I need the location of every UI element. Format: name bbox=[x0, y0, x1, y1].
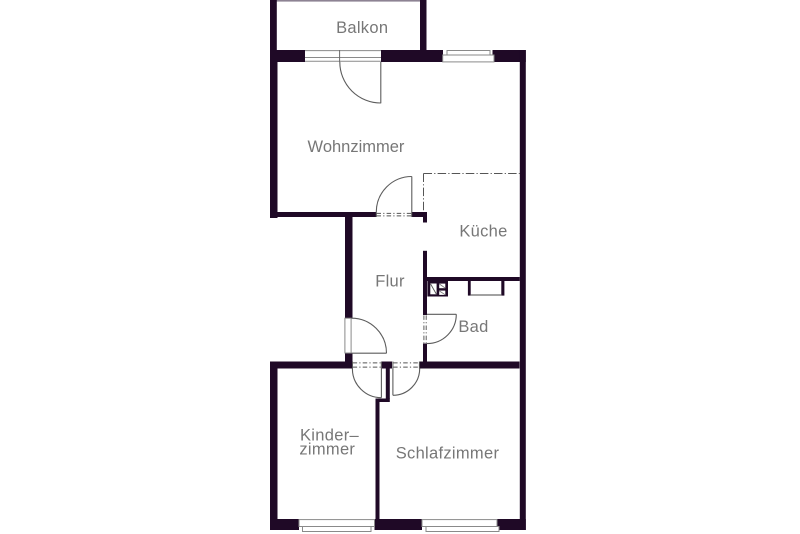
svg-text:Küche: Küche bbox=[459, 223, 507, 241]
svg-text:Flur: Flur bbox=[375, 273, 405, 291]
svg-text:Wohnzimmer: Wohnzimmer bbox=[308, 138, 405, 156]
svg-text:Schlafzimmer: Schlafzimmer bbox=[396, 444, 500, 462]
svg-text:Bad: Bad bbox=[458, 318, 488, 336]
svg-text:Balkon: Balkon bbox=[336, 19, 388, 37]
svg-text:zimmer: zimmer bbox=[299, 440, 355, 458]
